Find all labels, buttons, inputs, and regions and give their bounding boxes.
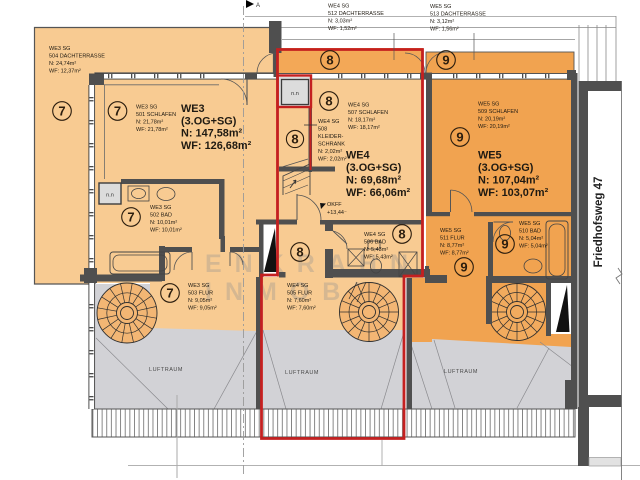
svg-text:7: 7	[127, 210, 134, 225]
svg-text:7: 7	[166, 286, 173, 301]
svg-text:8: 8	[398, 227, 405, 242]
svg-text:LUFTRAUM: LUFTRAUM	[444, 369, 478, 375]
svg-text:9: 9	[460, 260, 467, 275]
svg-text:8: 8	[291, 132, 298, 147]
svg-text:LUFTRAUM: LUFTRAUM	[149, 367, 183, 373]
svg-text:A: A	[256, 3, 260, 9]
svg-text:Friedhofsweg 47: Friedhofsweg 47	[593, 177, 605, 268]
svg-text:7: 7	[58, 104, 65, 119]
svg-text:8: 8	[325, 94, 332, 109]
svg-text:n.n: n.n	[291, 91, 299, 97]
svg-text:8: 8	[326, 53, 333, 68]
svg-text:9: 9	[456, 130, 463, 145]
svg-text:9: 9	[442, 53, 449, 68]
svg-text:7: 7	[114, 104, 121, 119]
svg-text:9: 9	[501, 237, 508, 252]
svg-text:8: 8	[296, 245, 303, 260]
svg-text:n.n: n.n	[106, 193, 114, 199]
svg-text:LUFTRAUM: LUFTRAUM	[285, 370, 319, 376]
